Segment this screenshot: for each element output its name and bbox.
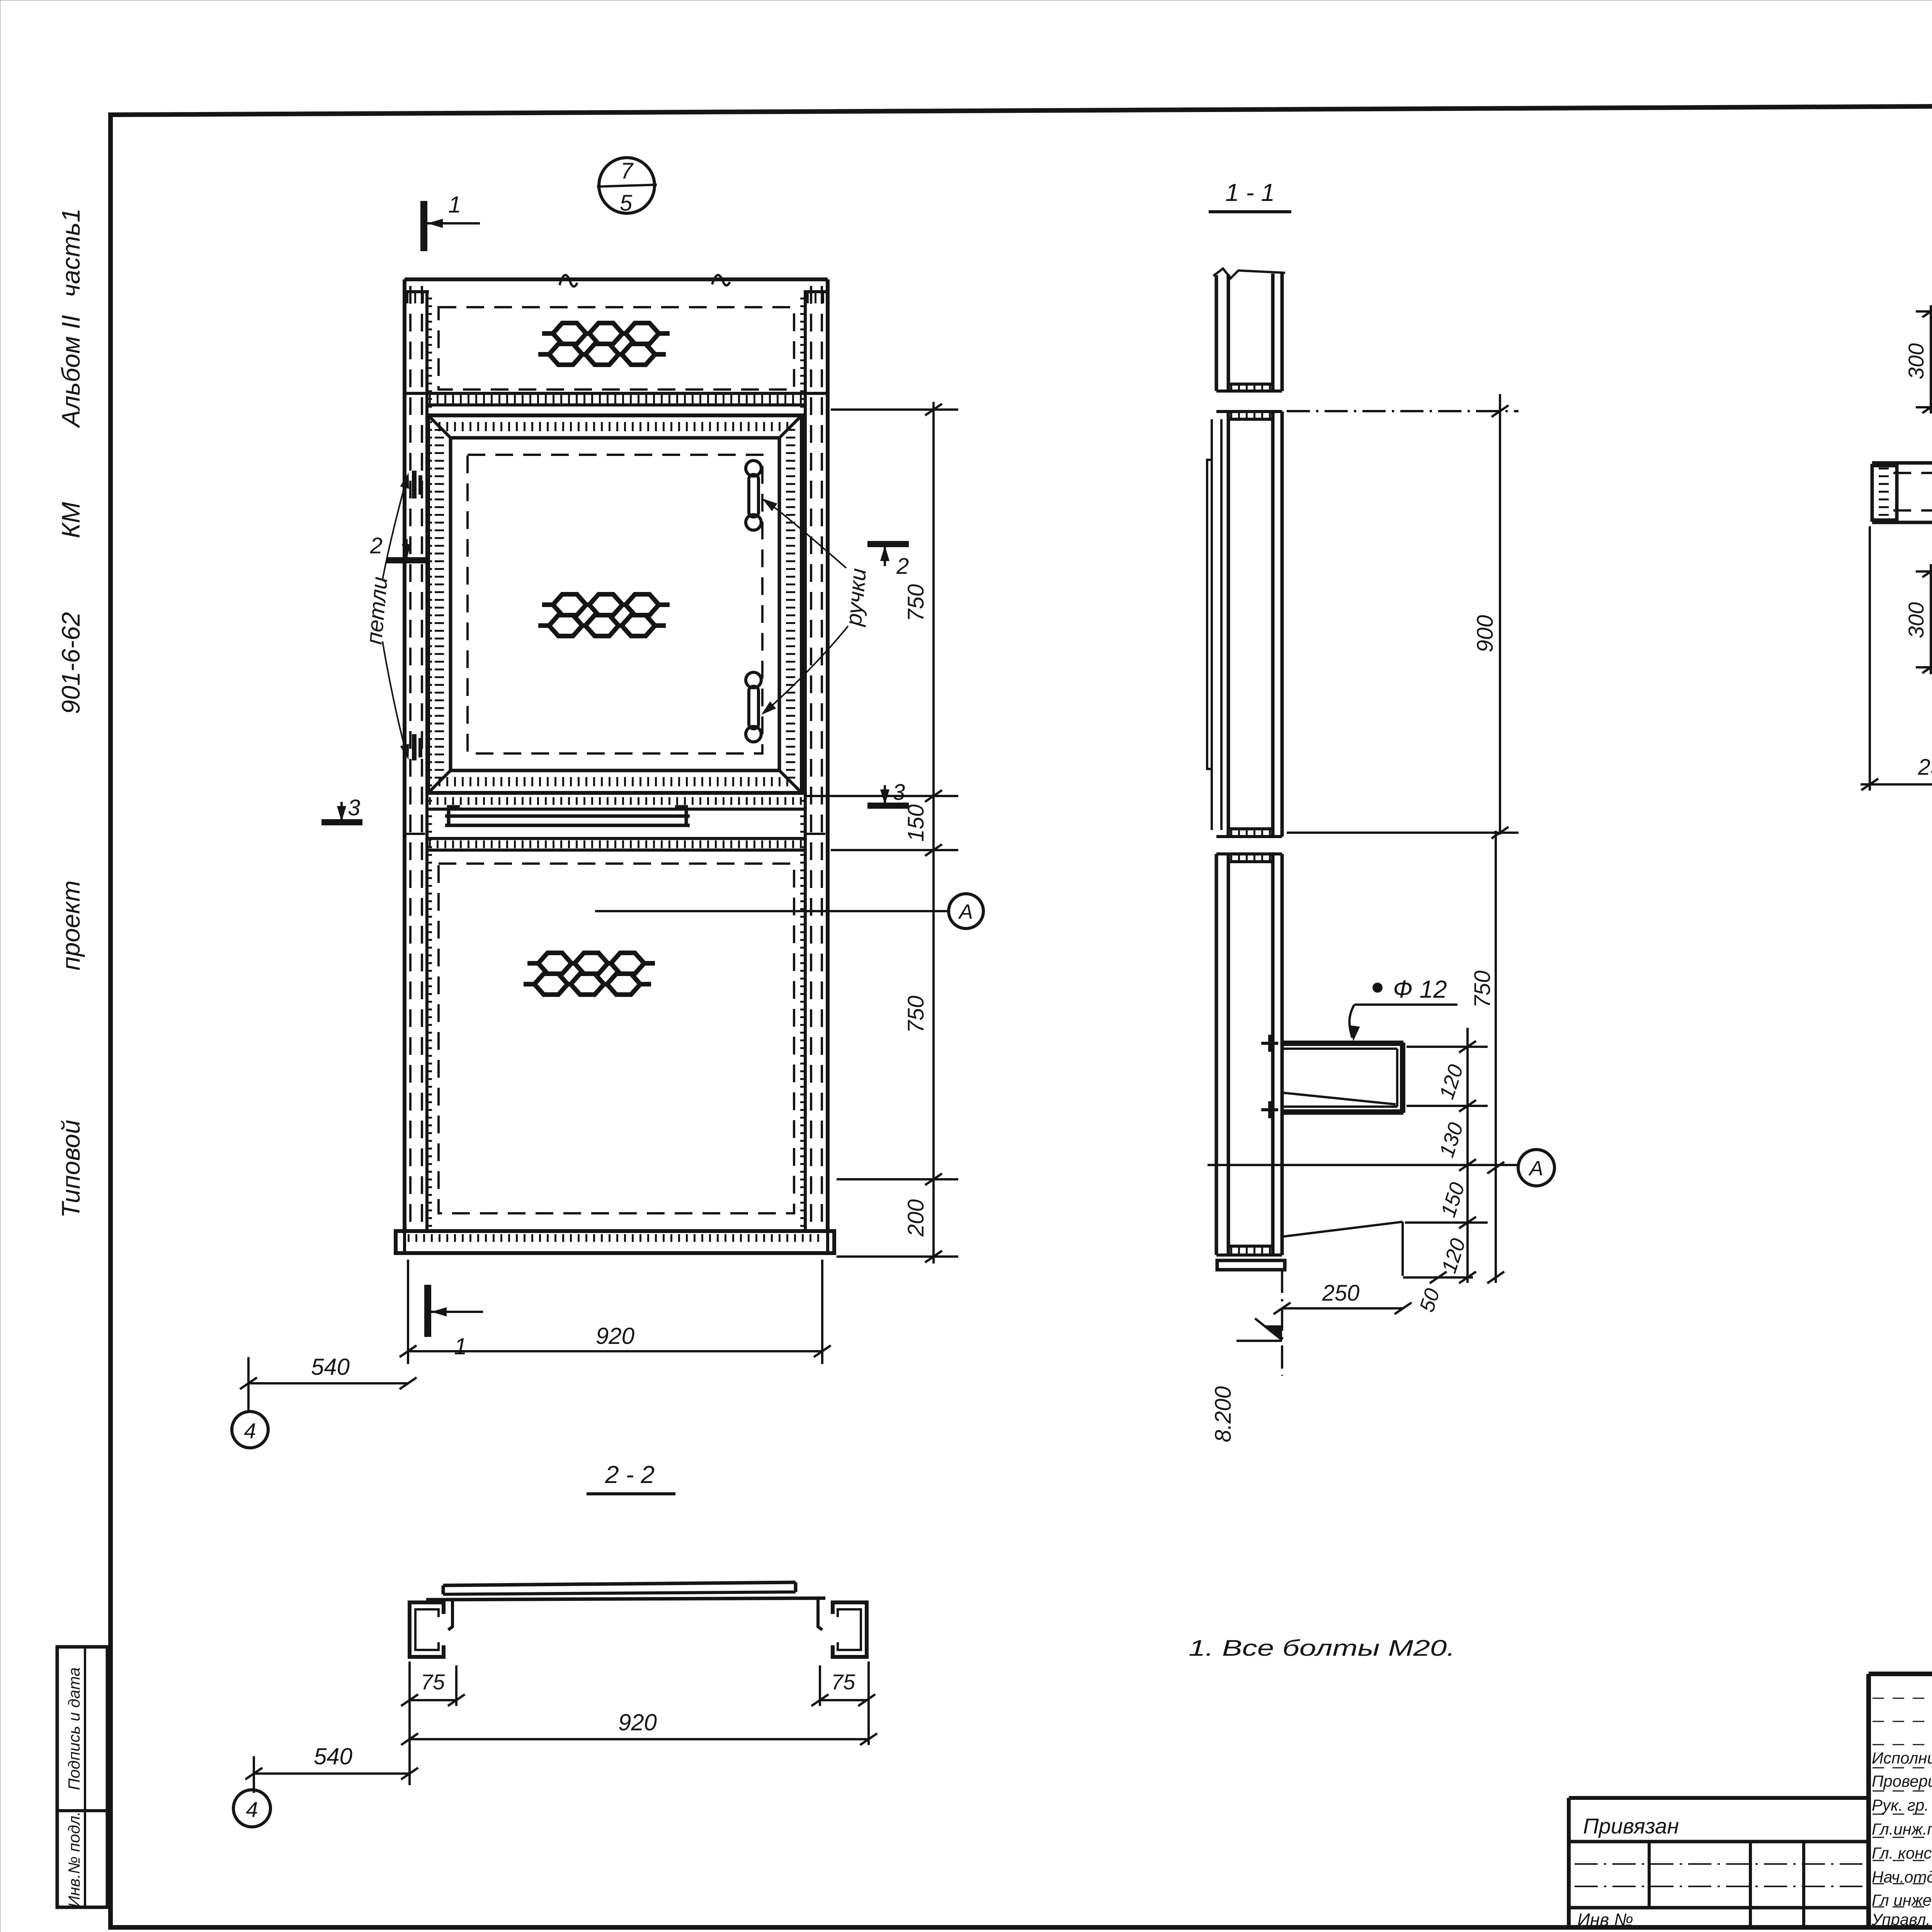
svg-text:КМ: КМ [56,502,85,538]
svg-text:петли: петли [361,576,392,646]
svg-text:Управл.: Управл. [1871,1910,1930,1929]
svg-text:750: 750 [1470,971,1495,1008]
svg-text:920: 920 [618,1709,657,1735]
svg-text:Подпись и дата: Подпись и дата [65,1667,83,1790]
svg-text:Гл инжен.: Гл инжен. [1872,1891,1932,1909]
svg-text:900: 900 [1473,615,1498,653]
svg-text:часть1: часть1 [56,208,85,297]
svg-text:Гл. констр.: Гл. констр. [1872,1844,1932,1862]
svg-text:3: 3 [893,780,905,805]
svg-text:8.200: 8.200 [1211,1386,1236,1442]
svg-text:75: 75 [831,1670,855,1694]
svg-text:75: 75 [421,1670,445,1694]
svg-text:7: 7 [621,158,634,184]
svg-text:Рук. гр.: Рук. гр. [1872,1796,1929,1814]
svg-text:Проверил: Проверил [1872,1772,1932,1790]
svg-text:2: 2 [896,554,909,579]
svg-text:1 - 1: 1 - 1 [1225,179,1275,206]
svg-text:50: 50 [1415,1286,1444,1315]
svg-text:Ф 12: Ф 12 [1393,975,1447,1003]
svg-text:200: 200 [903,1199,929,1237]
svg-text:Альбом II: Альбом II [56,315,85,429]
svg-text:1. Все болты М20.: 1. Все болты М20. [1189,1636,1455,1661]
svg-text:проект: проект [56,880,85,970]
svg-text:1: 1 [448,192,461,218]
svg-text:250: 250 [1918,755,1932,780]
svg-text:Инв №: Инв № [1577,1910,1633,1930]
svg-text:Привязан: Привязан [1583,1814,1679,1838]
svg-text:300: 300 [1904,602,1928,638]
svg-text:2 - 2: 2 - 2 [605,1461,655,1488]
svg-text:3: 3 [348,795,360,820]
svg-text:920: 920 [596,1323,634,1349]
svg-text:901-6-62: 901-6-62 [56,612,85,714]
svg-text:4: 4 [246,1797,258,1821]
svg-text:120: 120 [1437,1236,1470,1276]
svg-text:Инв.№ подл.: Инв.№ подл. [65,1811,83,1908]
svg-text:5: 5 [620,190,633,216]
svg-text:540: 540 [311,1354,350,1380]
svg-text:250: 250 [1322,1281,1360,1306]
svg-text:540: 540 [314,1743,352,1769]
svg-text:Гл.инж.пр: Гл.инж.пр [1872,1820,1932,1838]
svg-text:150: 150 [903,804,929,842]
svg-text:ручки: ручки [841,567,871,628]
svg-text:2: 2 [370,533,383,558]
svg-text:150: 150 [1437,1180,1469,1220]
svg-text:А: А [1528,1157,1543,1180]
svg-text:750: 750 [903,584,929,622]
svg-text:Нач.отд: Нач.отд [1872,1868,1932,1886]
svg-text:4: 4 [244,1418,256,1443]
svg-text:1: 1 [454,1333,467,1359]
svg-text:300: 300 [1904,343,1928,379]
svg-text:Исполнил: Исполнил [1872,1749,1932,1767]
svg-text:А: А [958,900,973,923]
svg-text:120: 120 [1435,1062,1468,1102]
svg-text:130: 130 [1435,1120,1468,1160]
svg-text:750: 750 [903,996,929,1033]
svg-text:Типовой: Типовой [56,1120,85,1218]
